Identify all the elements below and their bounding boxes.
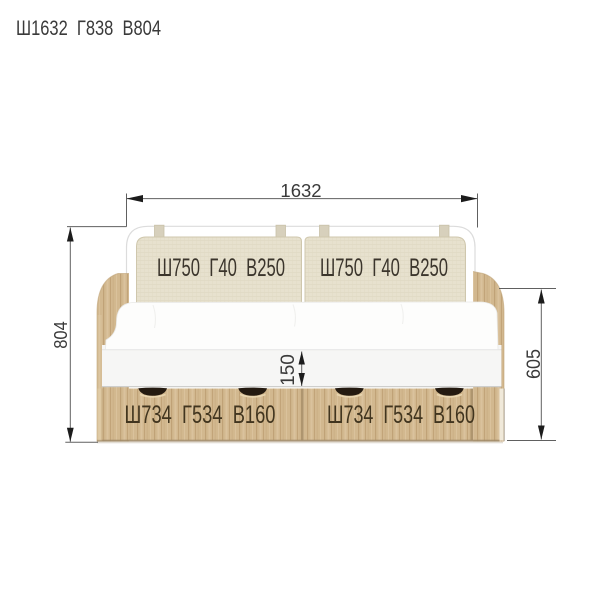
svg-text:804: 804	[51, 321, 71, 349]
svg-text:150: 150	[278, 354, 299, 386]
svg-text:Ш734 Г534 В160: Ш734 Г534 В160	[125, 401, 276, 429]
svg-text:1632: 1632	[280, 180, 321, 201]
svg-text:605: 605	[524, 349, 545, 379]
svg-text:Ш750 Г40 В250: Ш750 Г40 В250	[157, 254, 285, 282]
svg-text:Ш1632 Г838 В804: Ш1632 Г838 В804	[16, 17, 161, 40]
svg-text:Ш750 Г40 В250: Ш750 Г40 В250	[320, 254, 448, 282]
svg-text:Ш734 Г534 В160: Ш734 Г534 В160	[327, 401, 475, 429]
